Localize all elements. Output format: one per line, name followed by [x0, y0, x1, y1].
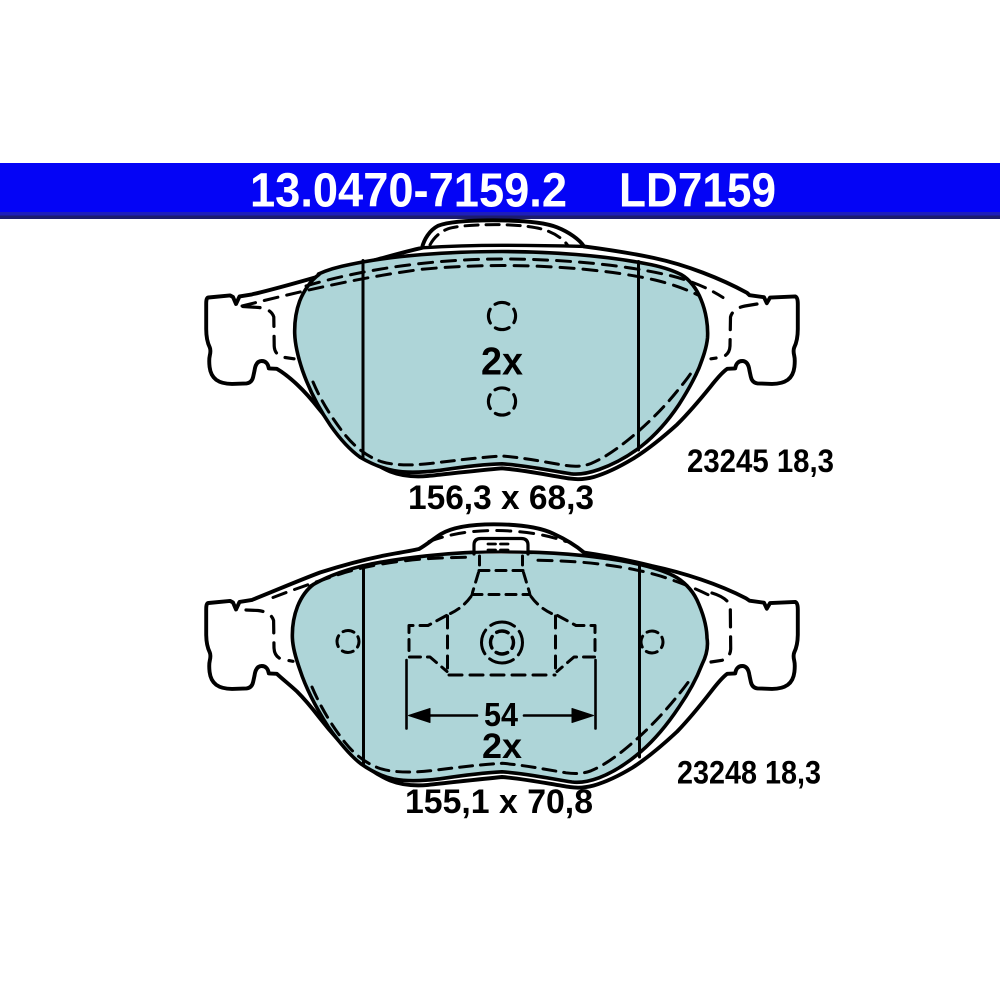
svg-text:23245 18,3: 23245 18,3 [687, 443, 834, 479]
svg-text:23248 18,3: 23248 18,3 [677, 755, 821, 791]
svg-text:155,1 x 70,8: 155,1 x 70,8 [405, 783, 593, 821]
svg-text:2x: 2x [482, 727, 523, 766]
svg-text:LD7159: LD7159 [619, 164, 776, 218]
svg-text:2x: 2x [481, 341, 523, 384]
svg-text:13.0470-7159.2: 13.0470-7159.2 [250, 164, 567, 218]
svg-text:156,3 x 68,3: 156,3 x 68,3 [408, 479, 594, 517]
